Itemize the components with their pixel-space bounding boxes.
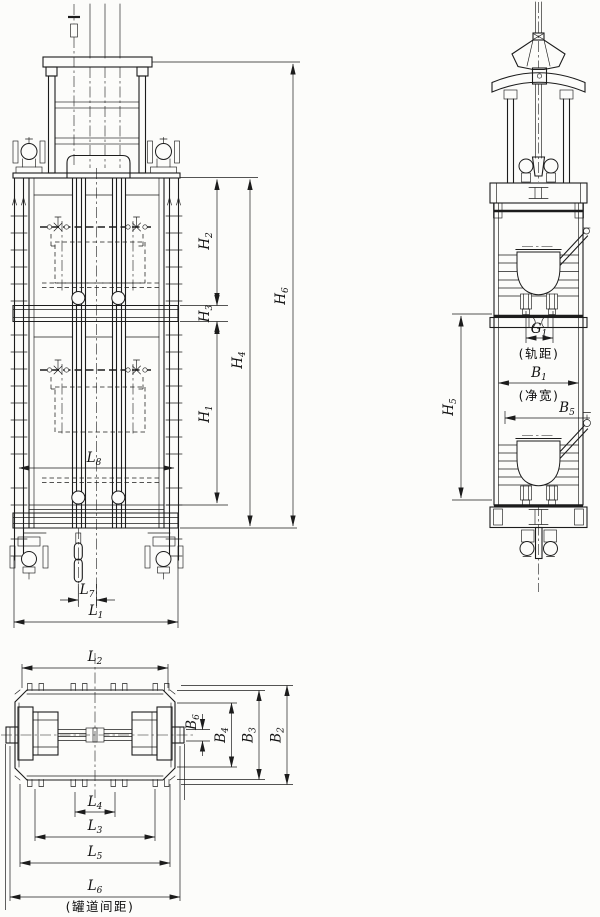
annotation-clear-width: (净宽) [519,388,560,403]
mine-car-outline-upper [42,234,160,288]
middle-deck-beam [13,306,178,322]
car-wheel [72,491,85,504]
dim-label-h2: H2 [197,232,215,251]
dim-label-l6: L6 [87,878,103,896]
dim-label-b4: B4 [213,727,231,744]
lower-deck [40,360,160,504]
car-wheel [72,292,85,305]
car-wheel [112,292,125,305]
lower-compartment [499,413,591,506]
side-view: G1 (轨距) B1 (净宽) B5 H5 [441,2,591,592]
dim-label-l8: L8 [86,450,102,468]
dim-label-l4: L4 [87,794,103,812]
roller-guide-top-right [148,138,180,174]
drawing-sheet: H2 H3 H1 H4 H6 L8 L7 L1 [0,0,600,917]
dimensions-side: G1 (轨距) B1 (净宽) B5 H5 [441,311,590,500]
roller-guides-bottom-side [520,505,558,592]
safety-arch [67,156,130,179]
dim-label-h1: H1 [197,405,215,424]
mine-car-side-lower [516,436,561,506]
mine-cage-dimension-drawing: H2 H3 H1 H4 H6 L8 L7 L1 [0,0,600,917]
upper-compartment [499,228,591,315]
head-frame [49,76,146,173]
dim-label-h6: H6 [273,287,291,306]
rope-capel [512,2,565,84]
upper-deck [40,217,160,305]
roller-guide-plan-right [93,707,184,760]
dim-label-b3: B3 [241,727,259,744]
suspension-rods [504,84,573,183]
dim-label-b5: B5 [558,400,575,418]
dim-label-l3: L3 [87,818,103,836]
annotation-rail-gauge: (轨距) [519,346,560,361]
bottom-frame [13,505,178,533]
dim-label-l7: L7 [79,582,95,600]
dim-label-h4: H4 [230,351,248,370]
mine-car-side-upper [516,247,561,315]
hoist-ropes [74,4,120,168]
roller-guide-plan-left [6,707,97,760]
annotation-guide-spacing: (罐道间距) [66,899,135,914]
dim-label-h3: H3 [197,304,215,323]
dimensions-plan: L2 B6 B4 B3 B2 L4 L3 L5 L6 (罐道间距) [6,649,294,914]
dim-label-b2: B2 [269,727,287,744]
roller-guide-bottom-right [145,537,183,579]
roller-guide-bottom-left [10,537,48,579]
dim-label-g1: G1 [531,321,548,339]
dim-label-h5: H5 [441,398,459,417]
cage-top-frame-side [490,183,587,218]
front-view: H2 H3 H1 H4 H6 L8 L7 L1 [10,4,300,628]
dim-label-l1: L1 [88,603,104,621]
dim-label-l2: L2 [87,649,103,667]
guide-rail-left [11,178,27,560]
car-wheel [112,491,125,504]
dim-label-b1: B1 [530,365,547,383]
dim-label-b6: B6 [184,714,202,731]
dim-label-l5: L5 [87,844,103,862]
guide-rail-right [166,178,182,560]
plan-view: L2 B6 B4 B3 B2 L4 L3 L5 L6 (罐道间距) [1,649,293,914]
roller-guide-top-left [13,138,45,174]
head-beam [43,57,152,76]
